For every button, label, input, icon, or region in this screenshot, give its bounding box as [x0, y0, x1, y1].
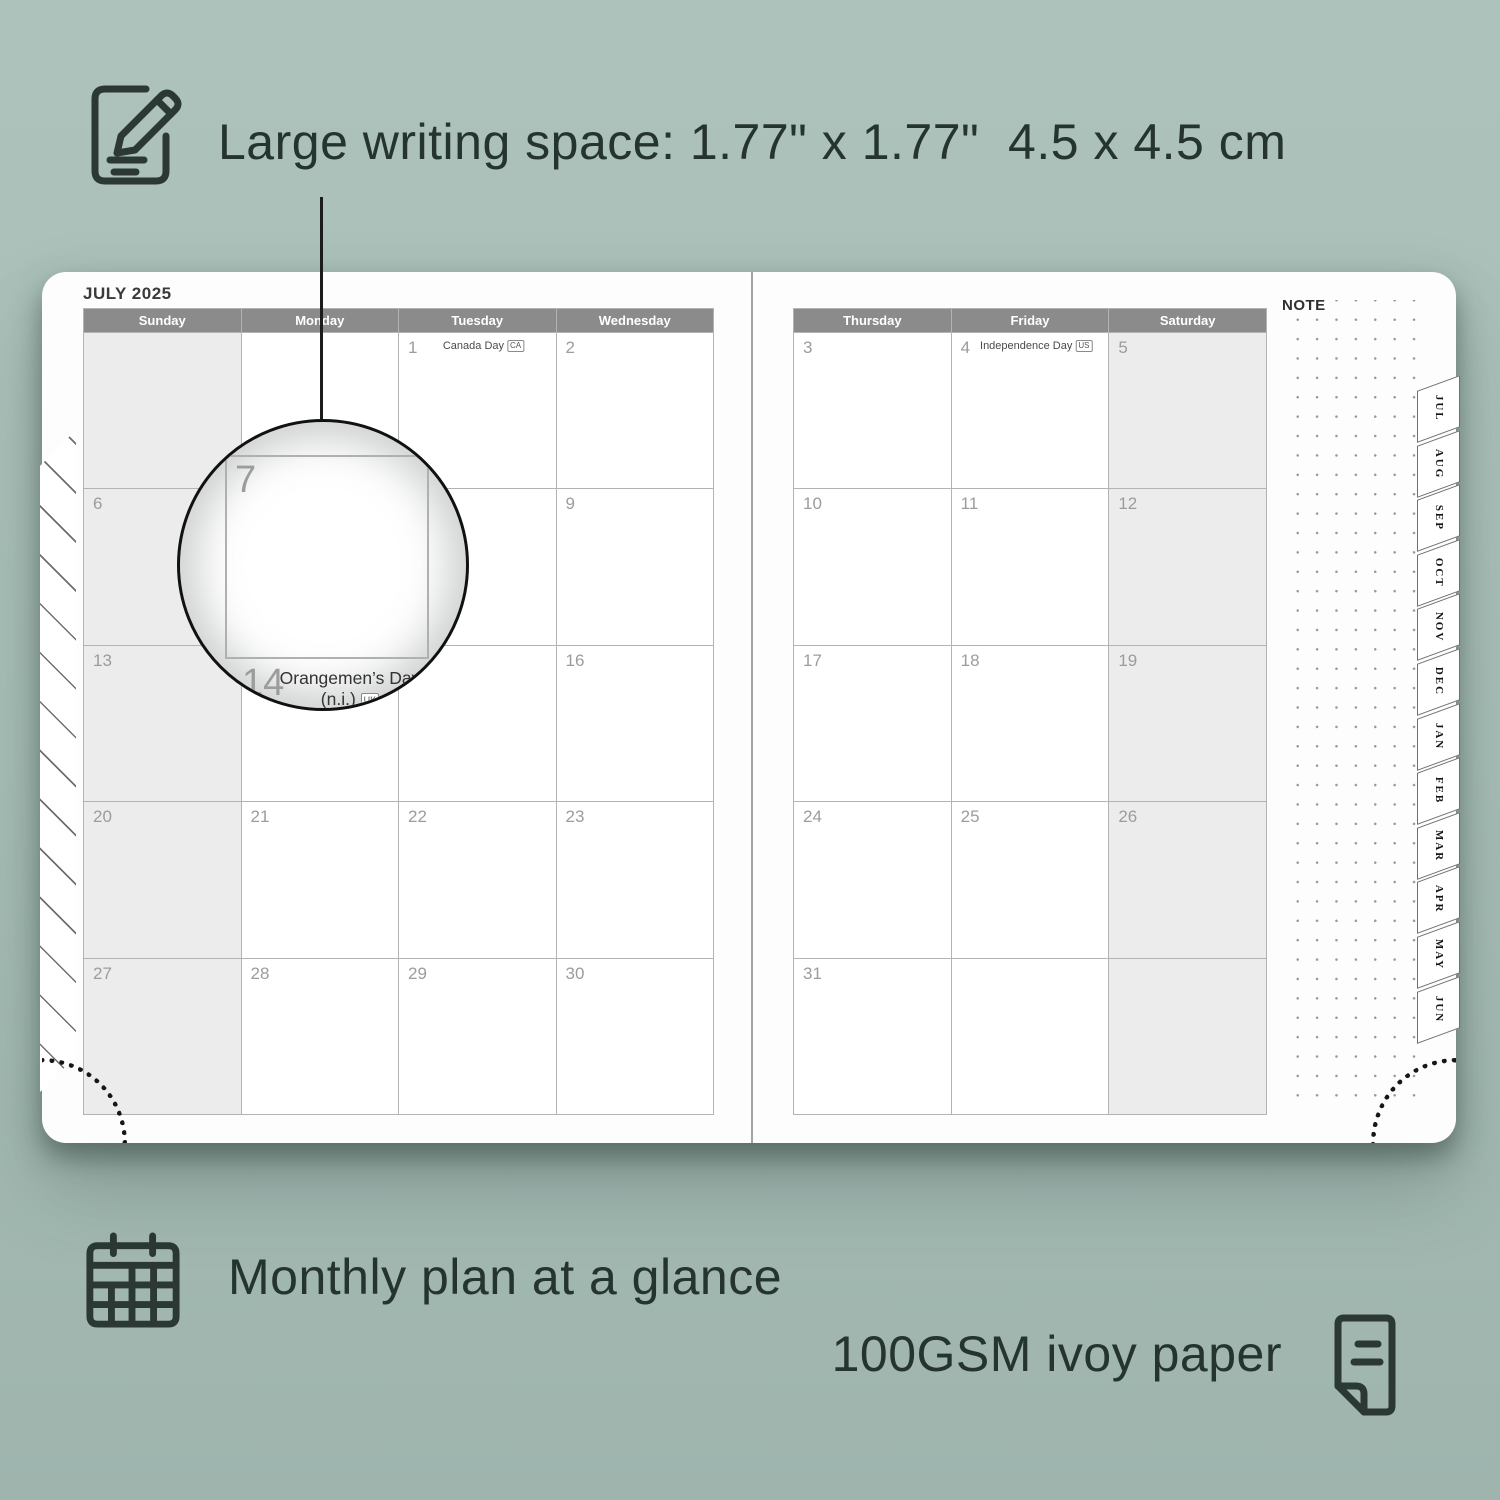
day-cell: 4Independence DayUS [952, 333, 1109, 488]
holiday-label: Independence DayUS [980, 340, 1092, 352]
left-page-edge-tabs [40, 430, 76, 1092]
feature-writing-space: Large writing space: 1.77" x 1.77" 4.5 x… [218, 113, 1286, 171]
weekday-header-tuesday: Tuesday [399, 309, 556, 332]
day-cell [952, 959, 1109, 1114]
day-number: 17 [803, 651, 822, 671]
day-cell: 17 [794, 646, 951, 801]
month-tab-strip: JULAUGSEPOCTNOVDECJANFEBMARAPRMAYJUN [1417, 383, 1460, 1038]
day-number: 18 [961, 651, 980, 671]
day-cell: 5 [1109, 333, 1266, 488]
day-number: 30 [566, 964, 585, 984]
day-number: 13 [93, 651, 112, 671]
magnified-day-number: 7 [235, 459, 256, 502]
day-number: 23 [566, 807, 585, 827]
magnified-holiday: Orangemen’s Day (n.i.) UK [275, 668, 425, 710]
day-number: 10 [803, 494, 822, 514]
day-cell: 21 [242, 802, 399, 957]
day-cell: 11 [952, 489, 1109, 644]
month-tab-label: DEC [1433, 667, 1445, 696]
country-tag: CA [507, 340, 524, 352]
planner-product-image: Large writing space: 1.77" x 1.77" 4.5 x… [0, 0, 1500, 1500]
month-tab-label: APR [1433, 886, 1445, 915]
day-cell: 31 [794, 959, 951, 1114]
calendar-grid-icon [84, 1232, 182, 1330]
magnified-holiday-line1: Orangemen’s Day [275, 668, 425, 689]
month-tab-label: AUG [1433, 448, 1445, 478]
country-tag: UK [361, 693, 380, 707]
day-cell: 19 [1109, 646, 1266, 801]
day-number: 5 [1118, 338, 1127, 358]
month-tab-label: JUN [1433, 996, 1445, 1023]
calendar-right-page: ThursdayFridaySaturday34Independence Day… [793, 308, 1267, 1115]
dotted-arc [42, 1058, 127, 1143]
month-tab-label: MAY [1433, 939, 1445, 970]
day-number: 3 [803, 338, 812, 358]
day-number: 16 [566, 651, 585, 671]
day-cell: 9 [557, 489, 714, 644]
weekday-header-friday: Friday [952, 309, 1109, 332]
holiday-name: Canada Day [443, 340, 504, 352]
day-cell: 12 [1109, 489, 1266, 644]
day-number: 4 [961, 338, 970, 358]
holiday-label: Canada DayCA [443, 340, 524, 352]
note-dot-grid: NOTE [1282, 300, 1418, 1112]
feature-monthly-plan: Monthly plan at a glance [228, 1248, 782, 1306]
weekday-header-saturday: Saturday [1109, 309, 1266, 332]
day-cell: 16 [557, 646, 714, 801]
weekday-header-thursday: Thursday [794, 309, 951, 332]
magnifier-lens: 7 14 Orangemen’s Day (n.i.) UK [177, 419, 469, 711]
day-cell: 18 [952, 646, 1109, 801]
holiday-name: Independence Day [980, 340, 1072, 352]
day-cell: 30 [557, 959, 714, 1114]
day-number: 1 [408, 338, 417, 358]
day-number: 20 [93, 807, 112, 827]
day-number: 31 [803, 964, 822, 984]
feature-paper: 100GSM ivoy paper [832, 1325, 1282, 1383]
day-cell: 28 [242, 959, 399, 1114]
magnified-day-cell: 7 [225, 455, 429, 659]
day-cell: 2 [557, 333, 714, 488]
dotted-arc [1371, 1058, 1456, 1143]
day-cell: 20 [84, 802, 241, 957]
day-cell: 22 [399, 802, 556, 957]
corner-dots-right [1360, 1047, 1456, 1143]
month-title: JULY 2025 [83, 284, 172, 304]
calendar-left-page: SundayMondayTuesdayWednesday1Canada DayC… [83, 308, 714, 1115]
day-cell: 25 [952, 802, 1109, 957]
month-tab-label: NOV [1433, 612, 1445, 642]
weekday-header-wednesday: Wednesday [557, 309, 714, 332]
month-tab-label: SEP [1433, 505, 1445, 531]
country-tag: US [1075, 340, 1092, 352]
day-cell: 13 [84, 646, 241, 801]
magnified-holiday-line2: (n.i.) UK [275, 689, 425, 710]
note-label: NOTE [1280, 297, 1333, 317]
callout-line [320, 197, 323, 425]
day-number: 19 [1118, 651, 1137, 671]
paper-sheet-icon [1322, 1310, 1404, 1422]
planner-spread: JULY 2025 SundayMondayTuesdayWednesday1C… [42, 272, 1456, 1143]
day-cell: 29 [399, 959, 556, 1114]
day-cell [1109, 959, 1266, 1114]
day-number: 2 [566, 338, 575, 358]
day-number: 24 [803, 807, 822, 827]
weekday-header-sunday: Sunday [84, 309, 241, 332]
day-number: 22 [408, 807, 427, 827]
day-number: 27 [93, 964, 112, 984]
day-number: 25 [961, 807, 980, 827]
day-number: 29 [408, 964, 427, 984]
day-number: 12 [1118, 494, 1137, 514]
day-cell: 10 [794, 489, 951, 644]
month-tab-label: FEB [1433, 777, 1445, 804]
page-gutter [751, 272, 753, 1143]
day-cell: 26 [1109, 802, 1266, 957]
day-cell: 3 [794, 333, 951, 488]
day-number: 26 [1118, 807, 1137, 827]
day-number: 6 [93, 494, 102, 514]
corner-dots-left [42, 1047, 138, 1143]
month-tab-label: MAR [1433, 829, 1445, 861]
day-number: 9 [566, 494, 575, 514]
day-cell: 23 [557, 802, 714, 957]
day-number: 11 [961, 494, 979, 514]
month-tab-label: JAN [1433, 723, 1445, 750]
month-tab-label: JUL [1433, 395, 1445, 422]
day-cell: 24 [794, 802, 951, 957]
pencil-note-icon [86, 80, 186, 190]
month-tab-label: OCT [1433, 558, 1445, 588]
day-number: 28 [251, 964, 270, 984]
day-number: 21 [251, 807, 270, 827]
